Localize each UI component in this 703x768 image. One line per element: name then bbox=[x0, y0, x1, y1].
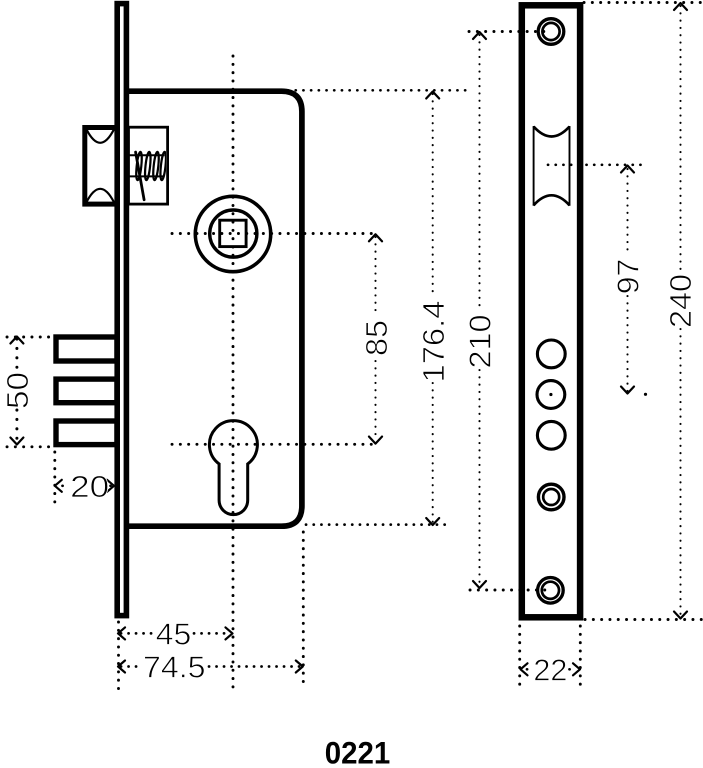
svg-text:240: 240 bbox=[663, 274, 698, 328]
svg-text:0221: 0221 bbox=[325, 736, 391, 768]
svg-text:85: 85 bbox=[359, 320, 394, 356]
svg-text:210: 210 bbox=[462, 315, 497, 369]
svg-text:20: 20 bbox=[70, 469, 109, 504]
svg-text:176.4: 176.4 bbox=[416, 301, 451, 383]
svg-text:45: 45 bbox=[156, 617, 192, 652]
svg-text:22: 22 bbox=[533, 653, 567, 688]
svg-text:50: 50 bbox=[0, 372, 35, 409]
svg-text:97: 97 bbox=[611, 259, 646, 295]
svg-text:74.5: 74.5 bbox=[143, 650, 206, 685]
